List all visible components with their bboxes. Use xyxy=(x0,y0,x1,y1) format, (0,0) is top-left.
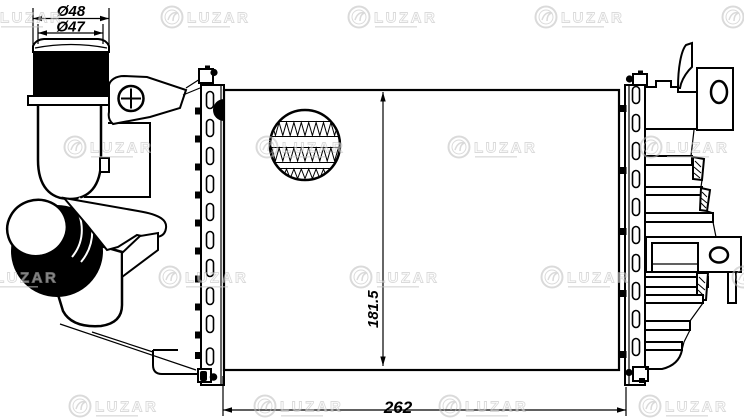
left-header-strip xyxy=(195,85,224,385)
intercooler-drawing: LUZAR xyxy=(0,0,744,419)
watermark xyxy=(0,267,58,288)
dim-label-height: 181.5 xyxy=(365,290,382,328)
inlet-hose-black xyxy=(33,52,109,97)
strip-tab xyxy=(195,332,202,339)
mounting-bracket-right-top xyxy=(697,68,733,130)
watermark xyxy=(70,396,159,417)
mounting-bracket-left xyxy=(109,76,200,124)
right-tank-fin xyxy=(678,43,692,88)
tank-rib xyxy=(645,213,713,222)
strip-tab xyxy=(195,352,202,359)
tank-rib xyxy=(645,187,702,195)
slot-hole xyxy=(633,227,640,244)
slot-hole xyxy=(207,316,214,333)
slot-hole xyxy=(207,348,214,365)
strip-tab xyxy=(195,248,202,255)
tank-notch xyxy=(100,158,109,172)
corner-clip-top-right xyxy=(626,71,647,86)
slot-hole xyxy=(207,204,214,221)
inlet-pipe xyxy=(33,39,109,97)
slot-hole xyxy=(633,283,640,300)
slot-hole xyxy=(207,92,214,109)
watermark xyxy=(723,7,744,28)
core-body xyxy=(224,90,619,370)
strip-tab xyxy=(620,290,627,297)
right-tank-arm xyxy=(645,81,697,129)
slot-hole xyxy=(633,311,640,328)
bracket-plate xyxy=(109,76,186,124)
slot-hole xyxy=(633,171,640,188)
watermark xyxy=(349,7,438,28)
foot-bracket xyxy=(153,350,201,374)
strip-tab xyxy=(195,108,202,115)
watermark xyxy=(536,7,625,28)
watermark xyxy=(440,396,529,417)
slot-hole xyxy=(633,143,640,160)
strip-tab xyxy=(195,192,202,199)
right-tank xyxy=(645,43,741,369)
slot-hole xyxy=(633,199,640,216)
corner-clip-top-left xyxy=(199,66,218,84)
drawing-canvas: LUZAR xyxy=(0,0,744,419)
strip-tab xyxy=(195,164,202,171)
strip-tab xyxy=(195,304,202,311)
slot-hole xyxy=(207,120,214,137)
strip-tab xyxy=(195,220,202,227)
slot-hole xyxy=(633,87,640,104)
slot-hole xyxy=(207,232,214,249)
strip-tab xyxy=(620,228,627,235)
inlet-pipe-top xyxy=(33,39,109,52)
dim-label-width: 262 xyxy=(383,398,413,417)
slot-hole xyxy=(207,148,214,165)
strip-tab xyxy=(195,136,202,143)
inlet-flange xyxy=(28,96,114,105)
lower-arm-lines xyxy=(60,324,196,370)
strip-tab xyxy=(620,351,627,358)
slot-hole xyxy=(633,255,640,272)
tank-rib xyxy=(645,295,703,303)
slot-hole xyxy=(207,176,214,193)
tank-rib xyxy=(645,321,690,330)
watermark xyxy=(162,7,251,28)
watermark xyxy=(160,267,249,288)
tank-rib xyxy=(645,342,682,350)
slot-hole xyxy=(633,115,640,132)
strip-tab xyxy=(620,105,627,112)
slot-hole xyxy=(633,339,640,356)
watermark xyxy=(0,7,63,28)
right-header-strip xyxy=(620,85,645,385)
watermark xyxy=(641,137,730,158)
slot-hole xyxy=(207,288,214,305)
strip-tab xyxy=(620,167,627,174)
watermark xyxy=(255,396,344,417)
watermark xyxy=(640,396,729,417)
bracket-window xyxy=(652,243,698,272)
